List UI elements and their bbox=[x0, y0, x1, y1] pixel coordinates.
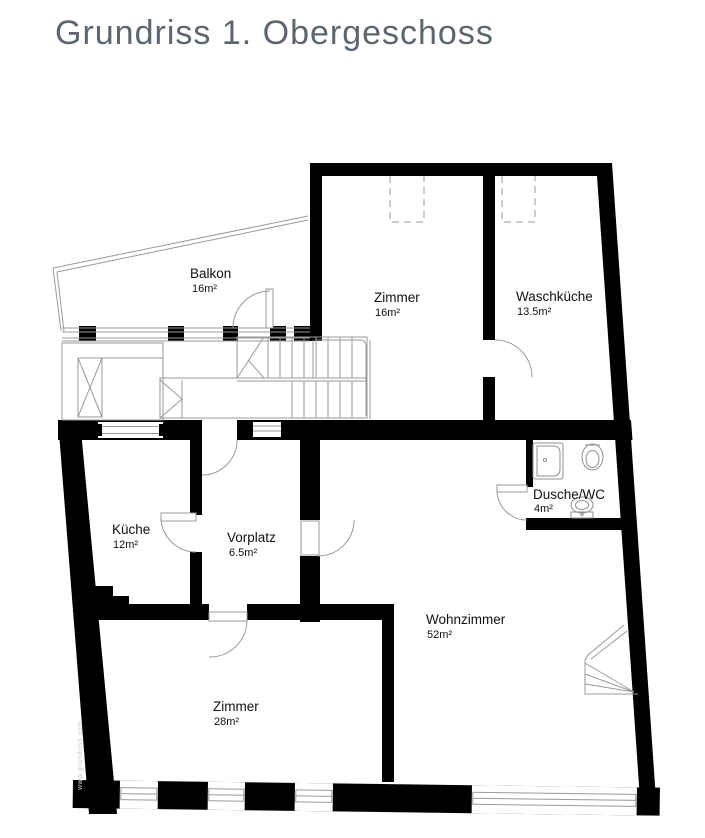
watermark: www.grundriss.com bbox=[77, 721, 84, 791]
wall-kueche-vorplatz-up bbox=[190, 440, 202, 515]
floorplan-page: Grundriss 1. Obergeschoss bbox=[0, 0, 705, 838]
room-area-kueche: 12m² bbox=[113, 539, 138, 551]
door-arc-kueche bbox=[161, 517, 196, 552]
wall-dusche-south bbox=[526, 518, 622, 530]
room-area-balkon: 16m² bbox=[192, 283, 217, 295]
wall-bottom-band bbox=[73, 780, 660, 816]
wall-upper-left bbox=[310, 163, 322, 337]
room-area-wohnzimmer: 52m² bbox=[427, 629, 452, 641]
room-area-zimmer16: 16m² bbox=[375, 307, 400, 319]
skylight-waschkueche bbox=[502, 176, 535, 222]
door-opening-vorplatz bbox=[202, 419, 237, 441]
skylight-zimmer bbox=[390, 176, 424, 222]
room-label-zimmer16: Zimmer bbox=[374, 290, 420, 305]
door-leaf-kueche bbox=[161, 513, 196, 521]
room-area-zimmer28: 28m² bbox=[214, 716, 239, 728]
door-arc-zimmer28 bbox=[209, 620, 247, 657]
room-label-wohnzimmer: Wohnzimmer bbox=[426, 612, 506, 627]
staircase bbox=[62, 337, 370, 420]
door-arc-waschkueche bbox=[495, 340, 532, 377]
door-arc-balkon bbox=[233, 291, 270, 328]
wall-top bbox=[310, 163, 612, 176]
window-kueche-north bbox=[98, 422, 163, 438]
wall-dusche-west-up bbox=[526, 440, 533, 487]
room-area-dusche-wc: 4m² bbox=[534, 503, 553, 515]
room-label-kueche: Küche bbox=[112, 522, 150, 537]
door-arc-dusche bbox=[497, 490, 527, 520]
room-label-dusche-wc: Dusche/WC bbox=[533, 487, 605, 502]
floorplan-drawing: Balkon 16m² Zimmer 16m² Waschküche 13.5m… bbox=[0, 0, 705, 838]
room-label-zimmer28: Zimmer bbox=[213, 699, 259, 714]
doors bbox=[161, 289, 532, 657]
room-area-vorplatz: 6.5m² bbox=[229, 547, 257, 559]
door-arc-vorplatz bbox=[202, 440, 237, 475]
room-label-waschkueche: Waschküche bbox=[516, 289, 593, 304]
door-leaf-wohnzimmer bbox=[301, 521, 319, 555]
wall-zimmer28-wohnzimmer bbox=[382, 620, 394, 782]
room-label-vorplatz: Vorplatz bbox=[227, 530, 276, 545]
door-leaf-zimmer28 bbox=[209, 612, 247, 621]
door-arc-wohnzimmer bbox=[318, 520, 354, 556]
wall-divider-zimmer-waschkueche bbox=[483, 176, 495, 340]
room-label-balkon: Balkon bbox=[190, 266, 231, 281]
room-labels: Balkon 16m² Zimmer 16m² Waschküche 13.5m… bbox=[112, 266, 605, 728]
wall-zimmer28-north-east bbox=[247, 604, 394, 620]
door-leaf-dusche bbox=[497, 485, 527, 492]
room-area-waschkueche: 13.5m² bbox=[517, 306, 552, 318]
sink-icon bbox=[582, 444, 603, 470]
page-title: Grundriss 1. Obergeschoss bbox=[55, 14, 494, 53]
door-leaf-balkon bbox=[266, 289, 273, 328]
wall-right bbox=[597, 163, 657, 814]
wall-vorplatz-wohnzimmer-up bbox=[300, 440, 320, 520]
window-vorplatz-north bbox=[253, 422, 281, 437]
